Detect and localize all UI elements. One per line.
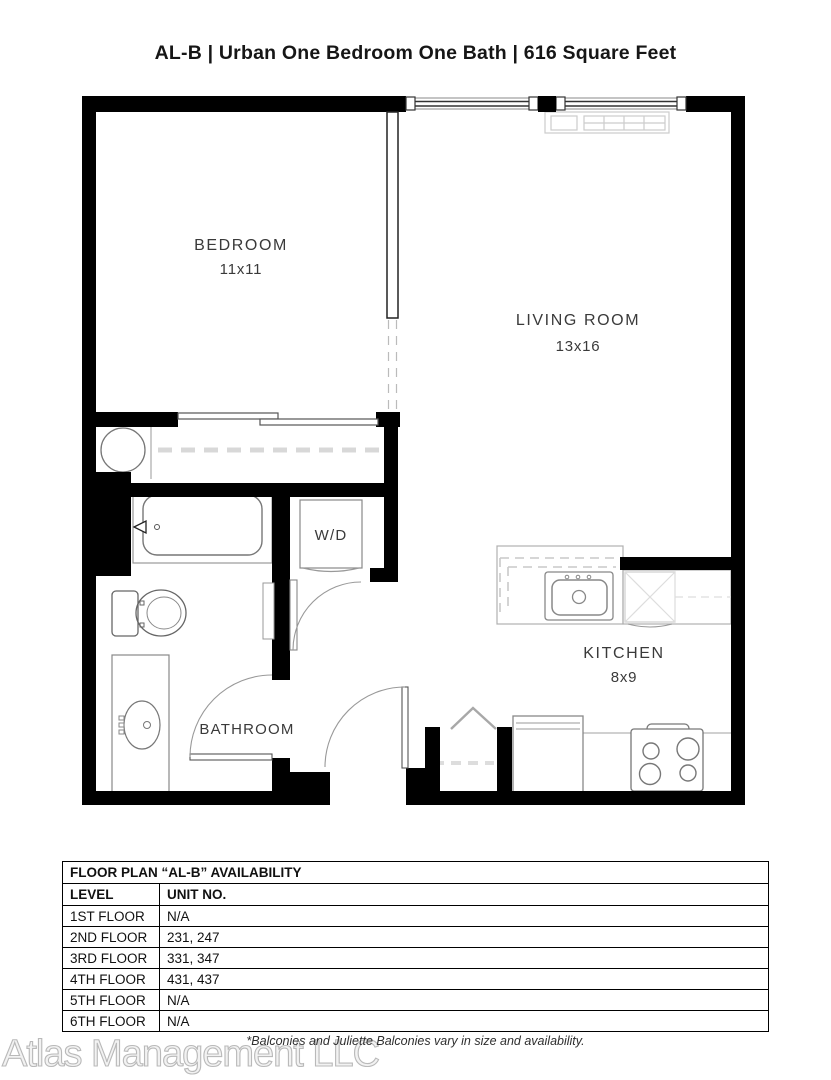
kitchen-label: KITCHEN: [583, 645, 664, 662]
level-cell: 3RD FLOOR: [63, 948, 160, 969]
bedroom-partition: [387, 112, 398, 411]
footnote: *Balconies and Juliette Balconies vary i…: [0, 1034, 831, 1048]
toilet: [112, 590, 186, 636]
closet-sliding-doors: [178, 413, 378, 425]
table-title: FLOOR PLAN “AL-B” AVAILABILITY: [63, 862, 769, 884]
availability-table: FLOOR PLAN “AL-B” AVAILABILITY LEVEL UNI…: [62, 861, 769, 1032]
unit-cell: 431, 437: [160, 969, 769, 990]
closet-doors: [451, 708, 496, 729]
bedroom-label: BEDROOM: [194, 237, 288, 254]
bedroom-closet: [101, 427, 382, 479]
upper-cabinet-dashed: [508, 567, 616, 610]
bathroom-door: [190, 675, 272, 760]
level-cell: 1ST FLOOR: [63, 906, 160, 927]
bathroom-label: BATHROOM: [199, 721, 294, 738]
window-wall: [406, 96, 686, 112]
level-cell: 4TH FLOOR: [63, 969, 160, 990]
table-row: 6TH FLOOR N/A: [63, 1011, 769, 1032]
unit-cell: N/A: [160, 906, 769, 927]
window-cap: [556, 97, 565, 110]
living-room-label: LIVING ROOM: [516, 312, 640, 329]
floor-plan-flyer: AL-B | Urban One Bedroom One Bath | 616 …: [0, 0, 831, 1080]
level-cell: 5TH FLOOR: [63, 990, 160, 1011]
refrigerator: [513, 716, 583, 792]
unit-cell: 231, 247: [160, 927, 769, 948]
table-row: 5TH FLOOR N/A: [63, 990, 769, 1011]
stove: [631, 724, 703, 791]
table-row: 2ND FLOOR 231, 247: [63, 927, 769, 948]
entry-closet: [434, 708, 496, 763]
unit-cell: 331, 347: [160, 948, 769, 969]
tub-faucet-icon: [134, 521, 146, 533]
dishwasher: [625, 572, 731, 627]
level-cell: 6TH FLOOR: [63, 1011, 160, 1032]
column-header-level: LEVEL: [63, 884, 160, 906]
window-cap: [406, 97, 415, 110]
level-cell: 2ND FLOOR: [63, 927, 160, 948]
vanity-sink: [112, 655, 169, 792]
laundry-label: W/D: [315, 527, 348, 544]
window-cap: [677, 97, 686, 110]
bedroom-dims: 11x11: [220, 261, 263, 278]
kitchen-sink: [545, 572, 613, 620]
column-header-unit: UNIT NO.: [160, 884, 769, 906]
window-post: [538, 96, 556, 112]
living-room-dims: 13x16: [556, 338, 601, 355]
table-row: 1ST FLOOR N/A: [63, 906, 769, 927]
bathtub: [133, 487, 272, 563]
hvac-unit: [545, 112, 669, 133]
window-cap: [529, 97, 538, 110]
water-heater: [101, 428, 145, 472]
kitchen-dims: 8x9: [611, 669, 638, 686]
unit-cell: N/A: [160, 990, 769, 1011]
table-row: 4TH FLOOR 431, 437: [63, 969, 769, 990]
entry-door: [325, 687, 408, 768]
table-row: 3RD FLOOR 331, 347: [63, 948, 769, 969]
unit-cell: N/A: [160, 1011, 769, 1032]
